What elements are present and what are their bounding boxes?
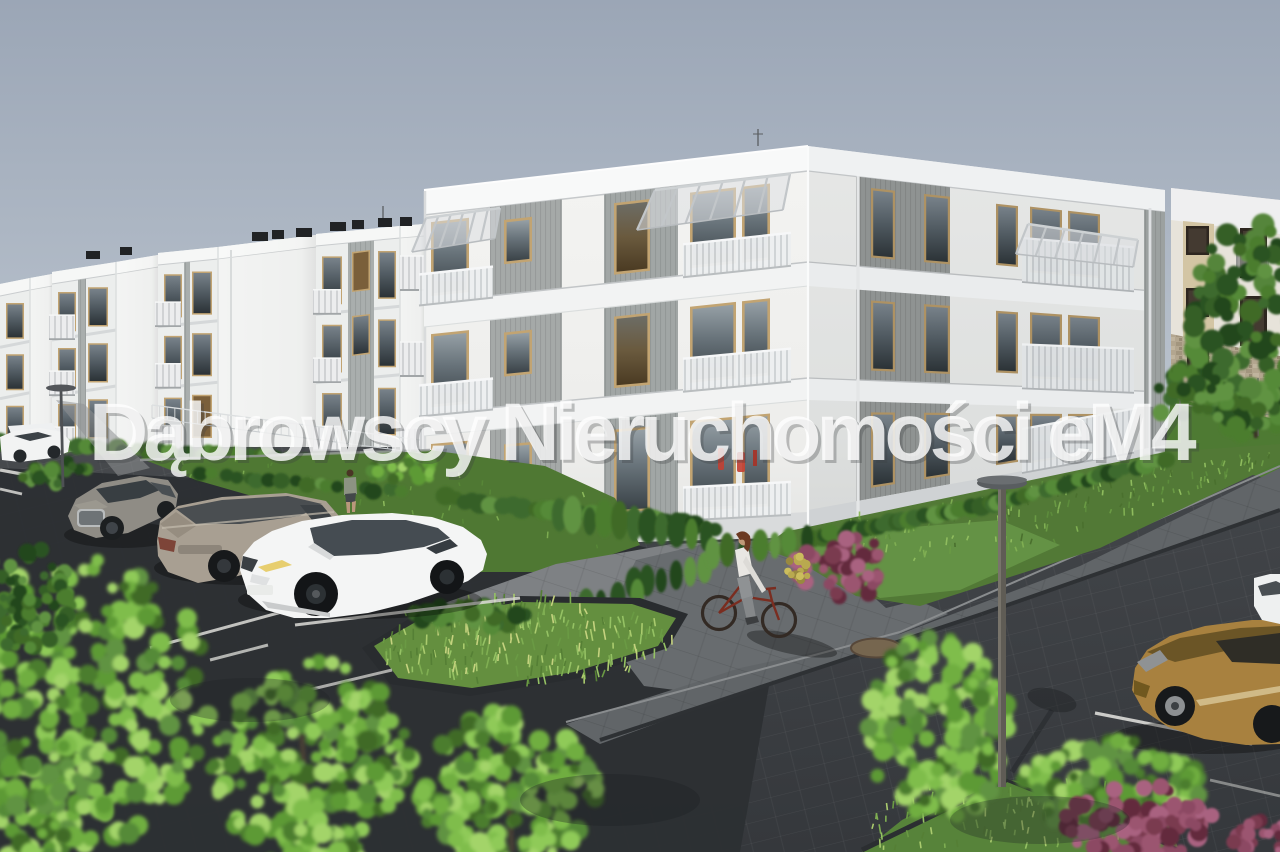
svg-text:Dąbrowscy Nieruchomości eM4: Dąbrowscy Nieruchomości eM4 <box>89 387 1197 478</box>
